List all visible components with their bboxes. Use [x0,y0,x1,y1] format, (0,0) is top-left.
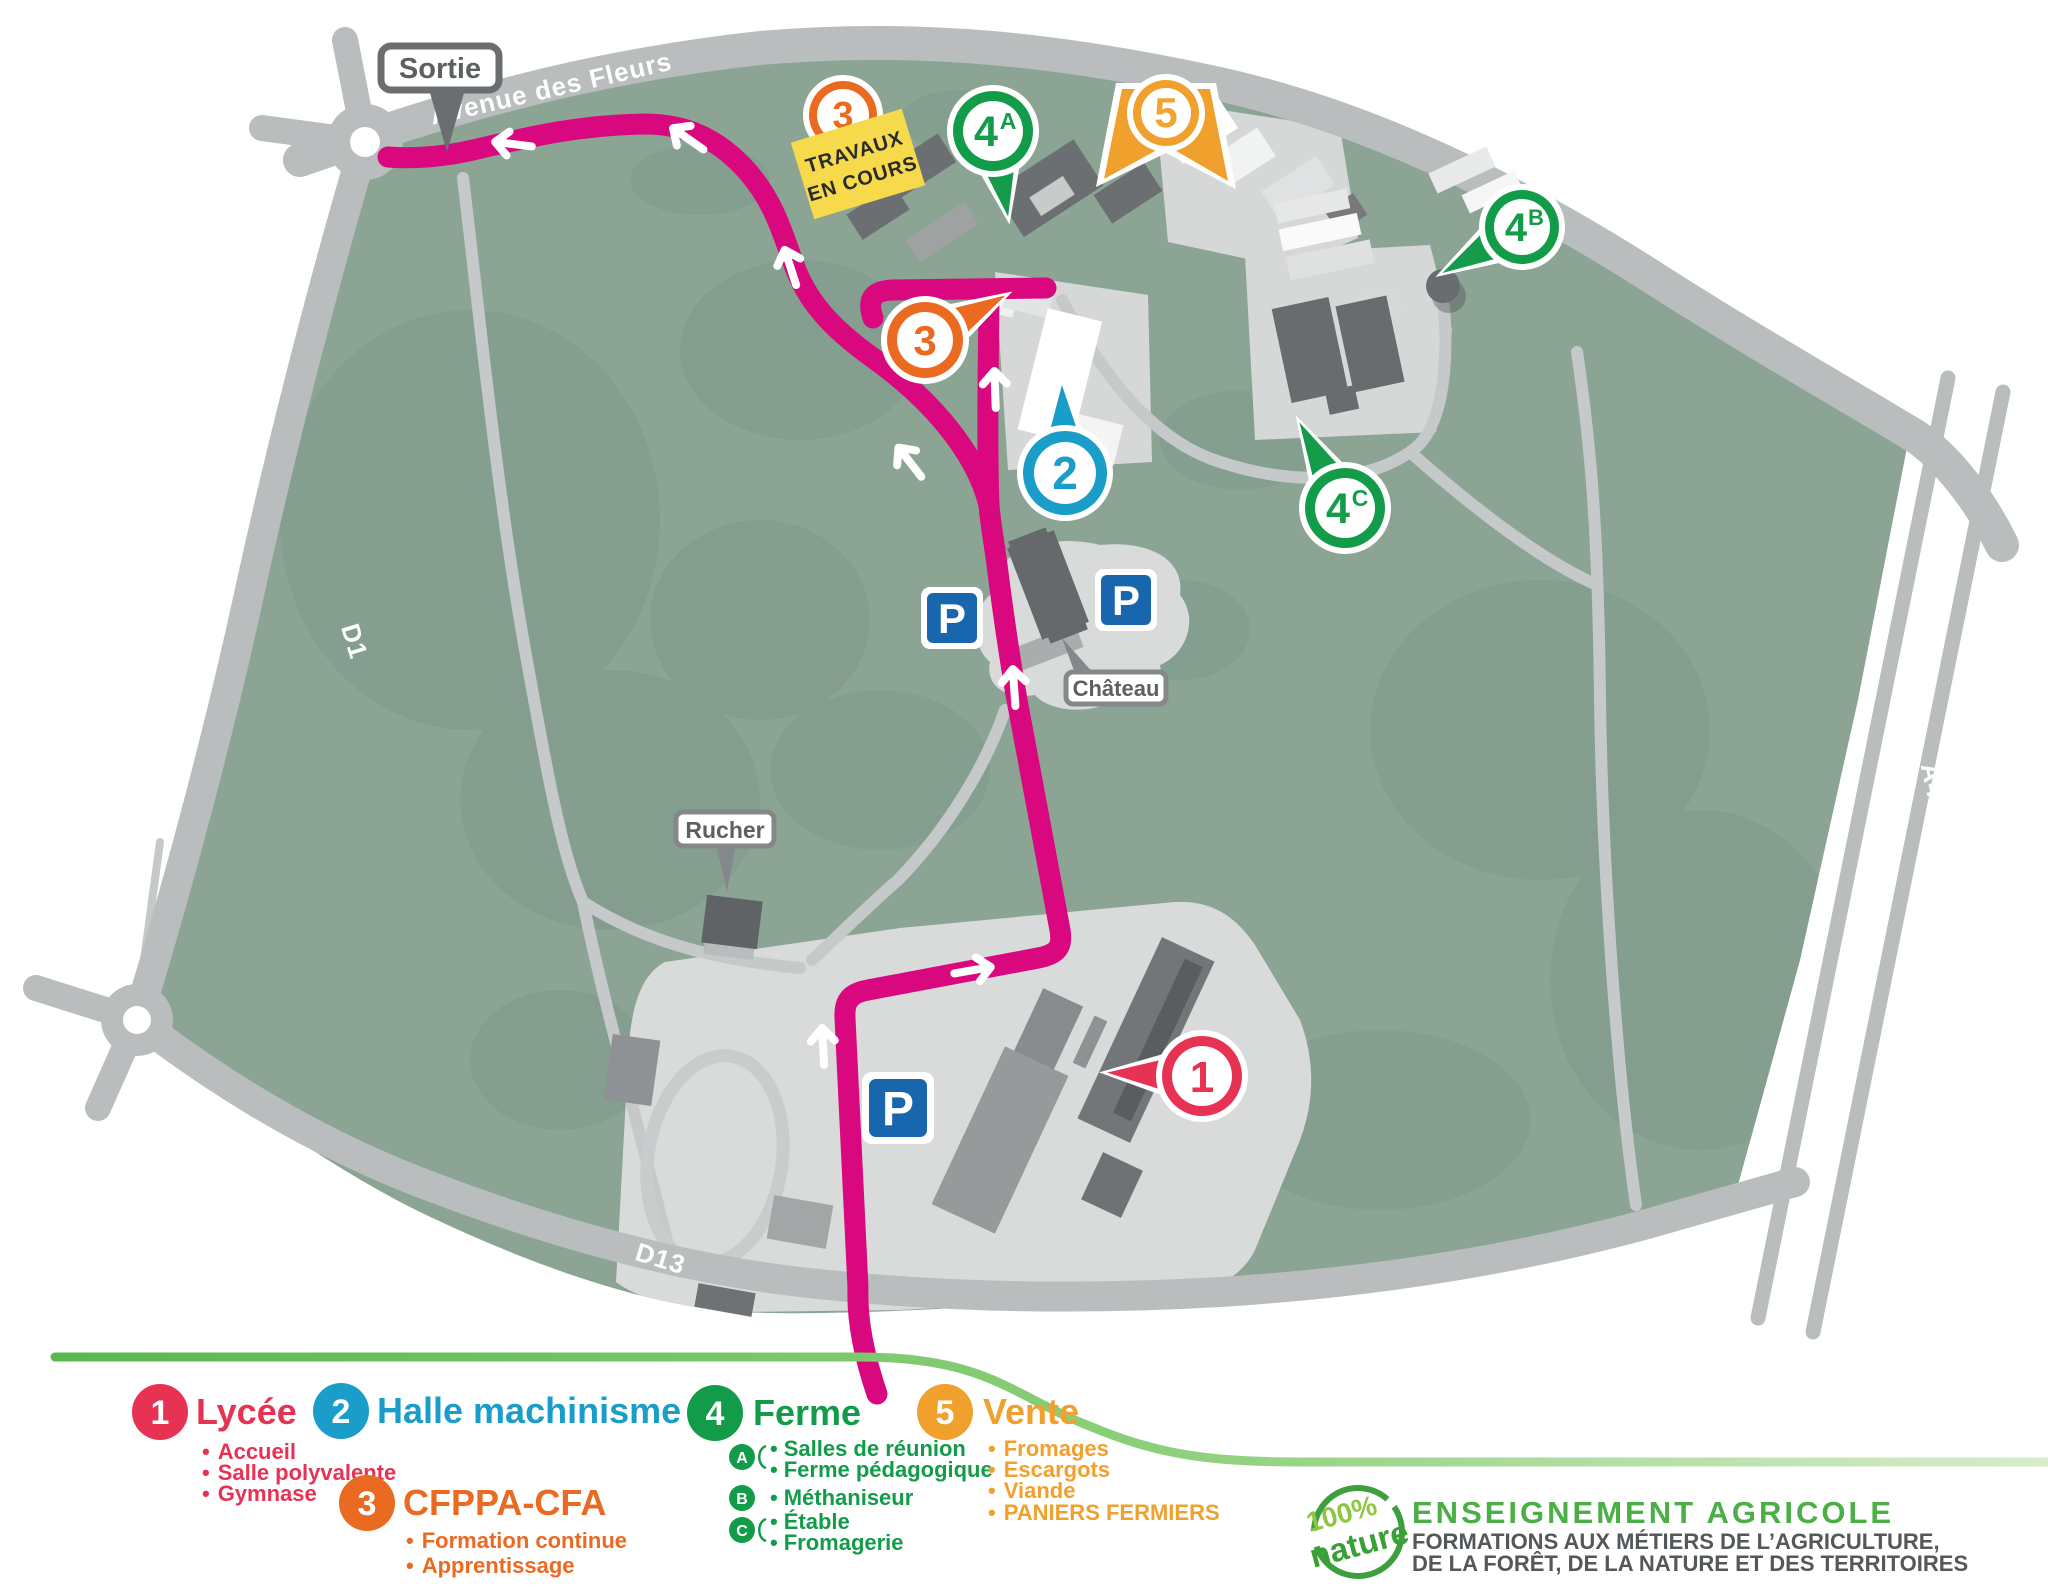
svg-text:P: P [1112,577,1140,624]
branding-subtitle-2: DE LA FORÊT, DE LA NATURE ET DES TERRITO… [1412,1551,1968,1576]
brace [759,1519,766,1541]
svg-text:Château: Château [1073,676,1160,701]
legend-item-cfppa: 3 CFPPA-CFA •Formation continue •Apprent… [339,1475,627,1578]
svg-text:5: 5 [1154,89,1177,136]
svg-text:Sortie: Sortie [399,53,481,85]
svg-text:1: 1 [1190,1053,1214,1102]
svg-text:3: 3 [913,317,936,364]
svg-text:4: 4 [974,108,998,156]
svg-text:1: 1 [151,1394,170,1432]
svg-text:A: A [736,1450,748,1467]
svg-text:•PANIERS FERMIERS: •PANIERS FERMIERS [988,1500,1220,1525]
legend: 1 Lycée •Accueil •Salle polyvalente •Gym… [132,1383,1220,1578]
svg-text:2: 2 [332,1393,351,1431]
svg-text:•Gymnase: •Gymnase [202,1481,317,1506]
svg-text:C: C [1352,485,1369,511]
legend-item-halle: 2 Halle machinisme [313,1383,681,1439]
svg-text:P: P [938,595,966,642]
parking-sign-icon: P [1095,569,1157,631]
svg-text:•Apprentissage: •Apprentissage [406,1553,575,1578]
svg-text:Vente: Vente [983,1391,1079,1432]
svg-text:Lycée: Lycée [196,1391,297,1432]
svg-text:P: P [882,1083,914,1136]
svg-text:C: C [736,1523,748,1540]
svg-text:Rucher: Rucher [685,817,764,843]
svg-text:3: 3 [358,1485,377,1523]
svg-text:CFPPA-CFA: CFPPA-CFA [403,1482,606,1523]
parking-sign-icon: P [862,1072,934,1144]
svg-text:B: B [736,1491,748,1508]
branding-title: ENSEIGNEMENT AGRICOLE [1412,1495,1894,1530]
svg-text:B: B [1528,205,1544,230]
svg-text:•Fromagerie: •Fromagerie [770,1530,904,1555]
building-rucher [701,895,762,960]
svg-text:5: 5 [936,1394,955,1432]
svg-text:2: 2 [1052,447,1078,499]
svg-text:Ferme: Ferme [753,1392,861,1433]
nature-badge-icon: 100% nature [1297,1471,1420,1593]
svg-text:•Formation continue: •Formation continue [406,1528,627,1553]
svg-text:4: 4 [706,1395,725,1433]
svg-text:A: A [1000,108,1017,134]
svg-text:Halle machinisme: Halle machinisme [377,1390,681,1431]
brace [759,1446,766,1468]
svg-text:4: 4 [1326,485,1350,533]
svg-text:•Méthaniseur: •Méthaniseur [770,1485,914,1510]
branding: 100% nature ENSEIGNEMENT AGRICOLE FORMAT… [1297,1471,1968,1593]
map-canvas: Avenue des Fleurs D1 D13 A43 [0,0,2048,1593]
svg-text:•Ferme pédagogique: •Ferme pédagogique [770,1457,993,1482]
parking-sign-icon: P [921,587,983,649]
campus-access-map: Avenue des Fleurs D1 D13 A43 [0,0,2048,1593]
svg-text:4: 4 [1505,206,1528,250]
